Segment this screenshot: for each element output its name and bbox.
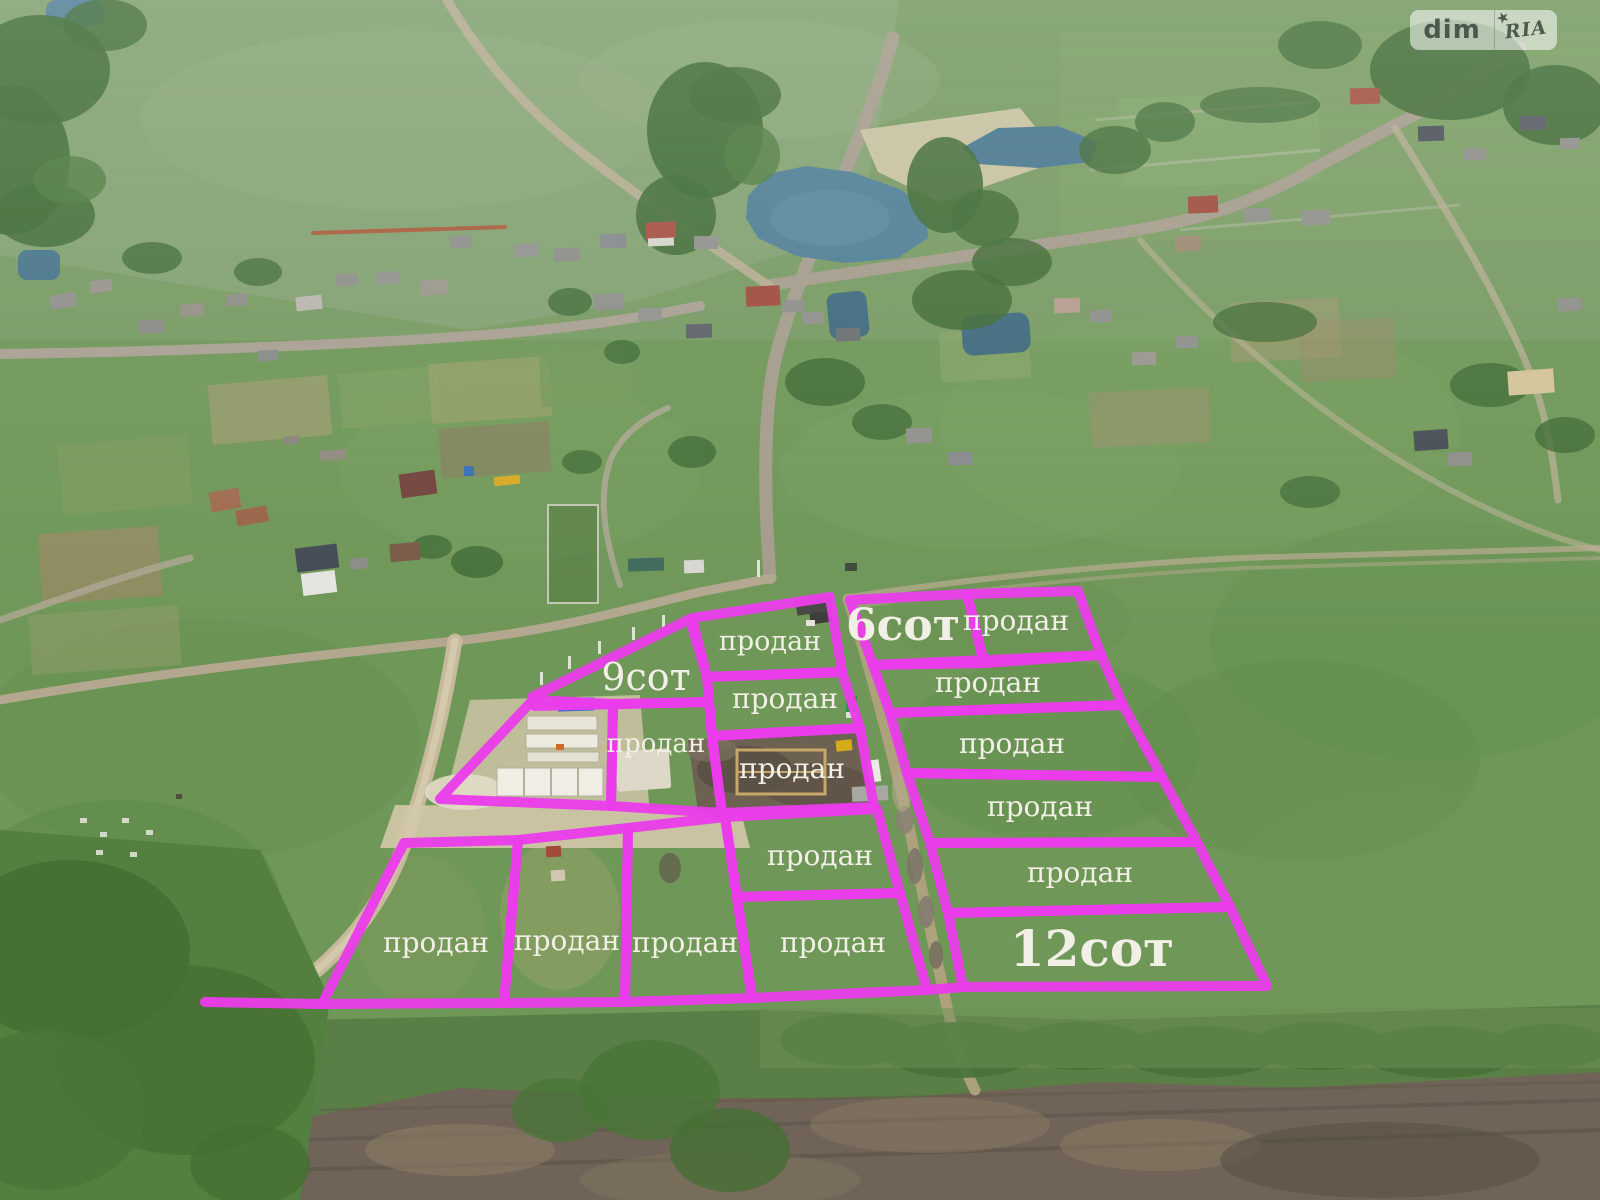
plot-label-right-3: продан <box>959 727 1065 760</box>
house <box>179 303 204 317</box>
house <box>782 299 805 312</box>
plot-boundary-segment-1 <box>927 987 963 990</box>
pond-left <box>18 250 60 280</box>
house <box>295 295 322 312</box>
house <box>1090 310 1112 323</box>
house <box>389 542 420 563</box>
house <box>600 234 626 249</box>
house <box>226 293 249 307</box>
screenshot-root: 6сотпроданпроданпроданпроданпродан12сотп… <box>0 0 1600 1200</box>
house <box>1413 429 1448 451</box>
aerial-photo: 6сотпроданпроданпроданпроданпродан12сотп… <box>0 0 1600 1200</box>
house <box>138 319 165 334</box>
foundation-blocks <box>527 716 597 730</box>
house <box>836 328 860 342</box>
house-red-roof <box>745 285 780 307</box>
house <box>1558 297 1583 311</box>
house <box>450 235 473 248</box>
plot-label-mid-4: продан <box>767 839 873 872</box>
plot-label-mid-3: продан <box>739 752 845 785</box>
plot-label-bottom-2: продан <box>514 924 620 957</box>
plot-label-bottom-3: продан <box>632 926 738 959</box>
plot-label-bottom-1: продан <box>383 926 489 959</box>
house-maroon-roof <box>399 470 438 499</box>
plot-label-sot9: 9сот <box>601 655 690 699</box>
watermark-dim-ria[interactable]: dim ★ RIA <box>1410 10 1557 50</box>
plot-label-mid-2: продан <box>732 682 838 715</box>
big-white-house-roof <box>295 544 340 573</box>
plot-label-right-2: продан <box>935 666 1041 699</box>
house <box>802 312 824 325</box>
house <box>906 428 933 444</box>
house-red-roof <box>1350 87 1381 104</box>
tan-hut <box>551 870 566 882</box>
excavator <box>836 739 853 752</box>
house <box>420 279 449 296</box>
plot-label-right-1: продан <box>963 604 1069 637</box>
house <box>948 452 972 466</box>
house <box>1418 126 1445 142</box>
plot-label-mid-1: продан <box>719 626 821 657</box>
white-shed <box>684 560 704 574</box>
house <box>1176 336 1198 349</box>
house <box>376 271 401 285</box>
house <box>336 273 359 287</box>
house-red-roof <box>1188 195 1219 214</box>
house <box>1244 207 1271 222</box>
house <box>554 248 580 262</box>
house <box>1302 209 1331 225</box>
house-red-roof <box>646 221 677 239</box>
plot-label-sot6: 6сот <box>846 600 960 651</box>
blue-tank <box>464 466 474 476</box>
plot-label-right-4: продан <box>987 790 1093 823</box>
garage <box>350 557 369 570</box>
house <box>1464 148 1486 161</box>
green-roof-shed <box>628 557 664 571</box>
plot-boundary-segment-0 <box>205 1002 322 1004</box>
house <box>1520 116 1546 131</box>
house <box>514 243 539 257</box>
house <box>1448 451 1473 466</box>
house <box>1054 298 1081 314</box>
house <box>686 324 712 339</box>
plot-label-bottom-4: продан <box>780 926 886 959</box>
plot-label-pad-plot: продан <box>607 729 705 759</box>
house <box>594 293 625 311</box>
watermark-dim-text: dim <box>1410 17 1494 43</box>
house <box>638 308 662 322</box>
red-hut <box>546 846 562 858</box>
house-tan-hip-roof <box>1507 368 1555 395</box>
plot-label-sot12: 12сот <box>1010 919 1174 978</box>
shed <box>283 435 300 444</box>
watermark-ria-text: ★ RIA <box>1494 15 1558 44</box>
house <box>258 349 279 361</box>
plot-label-right-5: продан <box>1027 856 1133 889</box>
house <box>694 236 718 249</box>
house <box>1132 352 1156 366</box>
house <box>1560 138 1580 150</box>
house <box>1175 235 1202 251</box>
